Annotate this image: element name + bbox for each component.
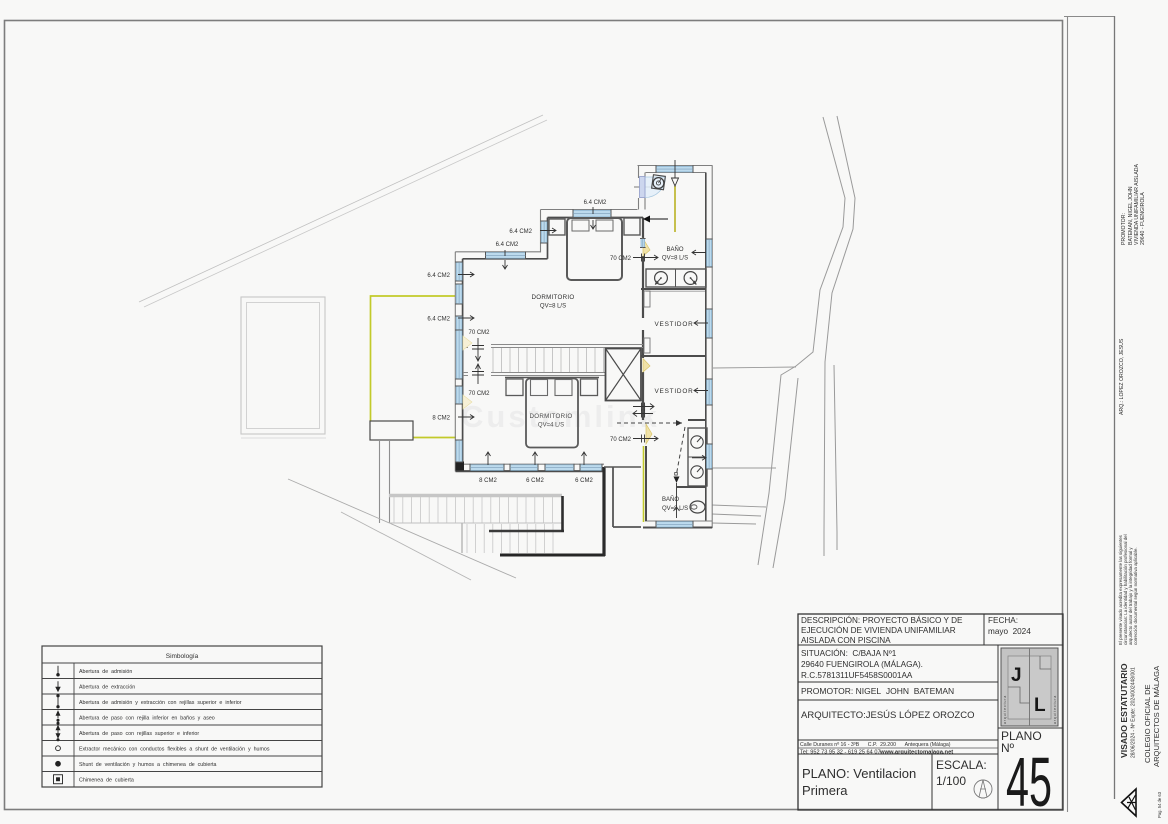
svg-text:ARQ.: LOPEZ OROZCO, JESUS: ARQ.: LOPEZ OROZCO, JESUS [1119, 338, 1125, 415]
svg-text:Extractor mecánico con cond: Extractor mecánico con conductos flexibl… [79, 746, 270, 752]
svg-text:ARQUITECTOS DE MÁLAGA: ARQUITECTOS DE MÁLAGA [1152, 665, 1161, 767]
svg-text:BAÑO: BAÑO [662, 496, 679, 503]
svg-text:www.arquitectomalaga.net: www.arquitectomalaga.net [879, 750, 953, 756]
svg-text:Calle Duranes nº 16 - 3ºB: Calle Duranes nº 16 - 3ºB C.P. 29.200 An… [800, 742, 951, 748]
svg-text:DORMITORIO: DORMITORIO [529, 413, 572, 420]
svg-text:Pag. 54 de 63: Pag. 54 de 63 [1157, 791, 1162, 818]
svg-text:L: L [1034, 695, 1046, 716]
svg-text:FECHA:: FECHA: [988, 616, 1018, 625]
svg-text:EJECUCIÓN DE VIVIENDA UNIFAMIL: EJECUCIÓN DE VIVIENDA UNIFAMILIAR [801, 625, 956, 635]
svg-text:Abertura de admisión y ext: Abertura de admisión y extracción con re… [79, 700, 242, 706]
svg-text:Abertura de paso con rejil: Abertura de paso con rejillas superior e… [79, 731, 199, 737]
svg-text:PROMOTOR: NIGEL JOHN BATEMAN: PROMOTOR: NIGEL JOHN BATEMAN [801, 686, 954, 696]
svg-text:a r q u i t e c t u r a: a r q u i t e c t u r a [1003, 696, 1007, 724]
svg-text:VISADO ESTATUTARIO: VISADO ESTATUTARIO [1119, 663, 1129, 758]
svg-text:70 CM2: 70 CM2 [610, 256, 632, 262]
svg-text:mayo 2024: mayo 2024 [988, 627, 1031, 636]
svg-text:6 CM2: 6 CM2 [526, 478, 544, 484]
svg-text:8 CM2: 8 CM2 [432, 416, 450, 422]
svg-text:ESCALA:: ESCALA: [936, 758, 987, 772]
svg-text:PROMOTOR:: PROMOTOR: [1121, 213, 1127, 245]
svg-text:Abertura de admisión: Abertura de admisión [79, 669, 132, 675]
svg-text:Abertura de extracción: Abertura de extracción [79, 684, 135, 690]
svg-text:DORMITORIO: DORMITORIO [531, 294, 574, 301]
svg-text:BAÑO: BAÑO [666, 246, 683, 253]
svg-text:ARQUITECTO:JESÚS LÓPEZ OROZCO: ARQUITECTO:JESÚS LÓPEZ OROZCO [801, 710, 975, 721]
svg-text:QV=8 L/S: QV=8 L/S [662, 506, 688, 512]
svg-text:8 CM2: 8 CM2 [479, 478, 497, 484]
svg-text:45: 45 [1006, 743, 1052, 821]
svg-text:Tel: 952 73 95 32 - 619 25 64: Tel: 952 73 95 32 - 619 25 64 07 [800, 750, 881, 756]
svg-text:VESTIDOR: VESTIDOR [654, 388, 693, 395]
svg-text:Abertura de paso con rejil: Abertura de paso con rejilla inferior en… [79, 715, 215, 721]
svg-text:1/100: 1/100 [936, 774, 966, 788]
svg-text:29640 - FUENGIROLA: 29640 - FUENGIROLA [1140, 192, 1146, 245]
svg-text:QV=4 L/S: QV=4 L/S [538, 423, 564, 429]
svg-text:J: J [1011, 665, 1022, 686]
svg-text:DESCRIPCIÓN: PROYECTO BÁSICO Y: DESCRIPCIÓN: PROYECTO BÁSICO Y DE [801, 615, 963, 625]
svg-text:AISLADA CON PISCINA: AISLADA CON PISCINA [801, 636, 891, 645]
svg-text:COLEGIO OFICIAL DE: COLEGIO OFICIAL DE [1143, 684, 1152, 763]
svg-text:Primera: Primera [802, 783, 848, 798]
svg-text:PLANO: Ventilacion: PLANO: Ventilacion [802, 766, 916, 781]
svg-text:VESTIDOR: VESTIDOR [654, 321, 693, 328]
svg-text:R.C.5781311UF5458S0001AA: R.C.5781311UF5458S0001AA [801, 671, 913, 680]
svg-text:28/06/2024 - Nº Expte: 2024/00: 28/06/2024 - Nº Expte: 2024/002448/001 [1131, 667, 1137, 758]
svg-text:70 CM2: 70 CM2 [468, 330, 490, 336]
svg-text:70 CM2: 70 CM2 [610, 437, 632, 443]
svg-text:Shunt de ventilación y hum: Shunt de ventilación y humos a chimenea … [79, 762, 217, 768]
svg-text:70 CM2: 70 CM2 [468, 391, 490, 397]
svg-text:a r q u i t e c t u r a: a r q u i t e c t u r a [1053, 696, 1057, 724]
svg-text:SITUACIÓN: C/BAJA Nº1: SITUACIÓN: C/BAJA Nº1 [801, 648, 897, 658]
svg-text:6 CM2: 6 CM2 [575, 478, 593, 484]
svg-text:6.4 CM2: 6.4 CM2 [584, 200, 607, 206]
svg-text:Chimenea de cubierta: Chimenea de cubierta [79, 777, 134, 783]
svg-text:QV=8 L/S: QV=8 L/S [662, 256, 688, 262]
svg-text:QV=8 L/S: QV=8 L/S [540, 304, 566, 310]
svg-text:6.4 CM2: 6.4 CM2 [509, 229, 532, 235]
svg-text:6.4 CM2: 6.4 CM2 [496, 242, 519, 248]
svg-text:6.4 CM2: 6.4 CM2 [427, 273, 450, 279]
svg-text:corrección documental según no: corrección documental según normativa ap… [1133, 547, 1138, 645]
svg-text:29640 FUENGIROLA (MÁLAGA).: 29640 FUENGIROLA (MÁLAGA). [801, 659, 923, 669]
svg-text:6.4 CM2: 6.4 CM2 [427, 317, 450, 323]
svg-text:Simbología: Simbología [166, 653, 199, 660]
